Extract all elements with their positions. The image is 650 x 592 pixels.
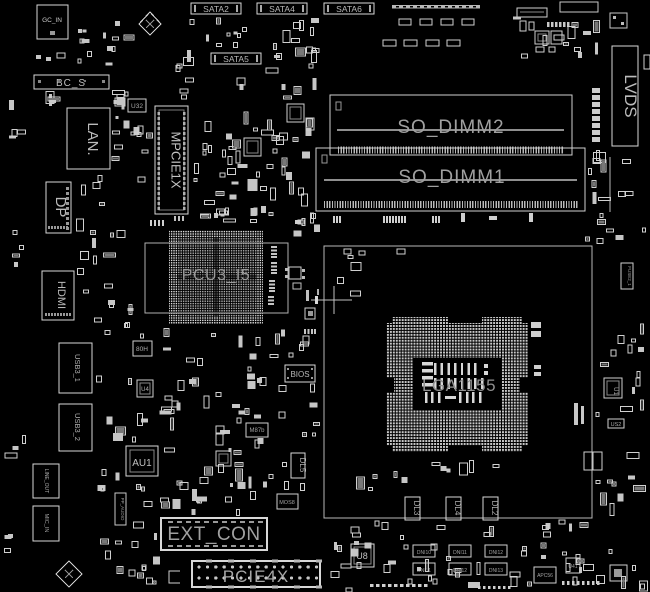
svg-text:BIOS: BIOS [290,370,309,379]
svg-text:EXT_CON: EXT_CON [167,524,260,545]
svg-text:MIC_IN: MIC_IN [43,514,49,533]
svg-text:AU1: AU1 [132,458,152,469]
svg-text:LVDS: LVDS [621,74,640,117]
svg-text:US2: US2 [611,422,622,428]
svg-text:DL4: DL4 [453,501,462,516]
svg-text:SATA2: SATA2 [203,4,229,14]
svg-text:SATA5: SATA5 [223,54,249,64]
svg-text:PCU3_I5: PCU3_I5 [182,267,250,284]
svg-text:DL3: DL3 [412,501,421,516]
svg-text:LINE_OUT: LINE_OUT [43,469,49,493]
svg-text:USB3_1: USB3_1 [73,354,82,382]
svg-text:SATA4: SATA4 [269,4,295,14]
svg-text:APC56: APC56 [537,573,553,579]
svg-text:80H: 80H [136,346,148,353]
svg-text:DNI13: DNI13 [489,568,503,574]
svg-text:USB3_2: USB3_2 [73,413,82,441]
svg-text:LGA1155: LGA1155 [422,376,496,395]
svg-text:DNI10: DNI10 [417,550,431,556]
svg-text:SATA6: SATA6 [336,4,362,14]
svg-text:PP_AUDIO: PP_AUDIO [120,498,125,521]
svg-text:SO_DIMM2: SO_DIMM2 [397,117,504,138]
svg-text:LAN.: LAN. [84,122,101,155]
svg-text:DNI12: DNI12 [489,550,503,556]
svg-text:BC_S: BC_S [56,78,86,89]
svg-text:MOS8: MOS8 [279,500,295,506]
svg-text:U1: U1 [612,387,618,395]
svg-text:SO_DIMM1: SO_DIMM1 [398,167,505,188]
svg-text:DNI11: DNI11 [453,550,467,556]
svg-text:DL2: DL2 [490,501,499,516]
svg-text:PCIE4X: PCIE4X [223,567,289,586]
svg-text:MPCIE1X: MPCIE1X [169,131,184,188]
svg-text:GC_IN: GC_IN [42,17,62,24]
svg-text:U4: U4 [141,387,149,393]
svg-text:HDMI: HDMI [55,281,67,309]
svg-text:M87b: M87b [249,428,265,434]
svg-text:U32: U32 [131,103,143,110]
svg-text:FUSE2_1: FUSE2_1 [627,266,632,286]
svg-text:DL5: DL5 [298,458,307,473]
